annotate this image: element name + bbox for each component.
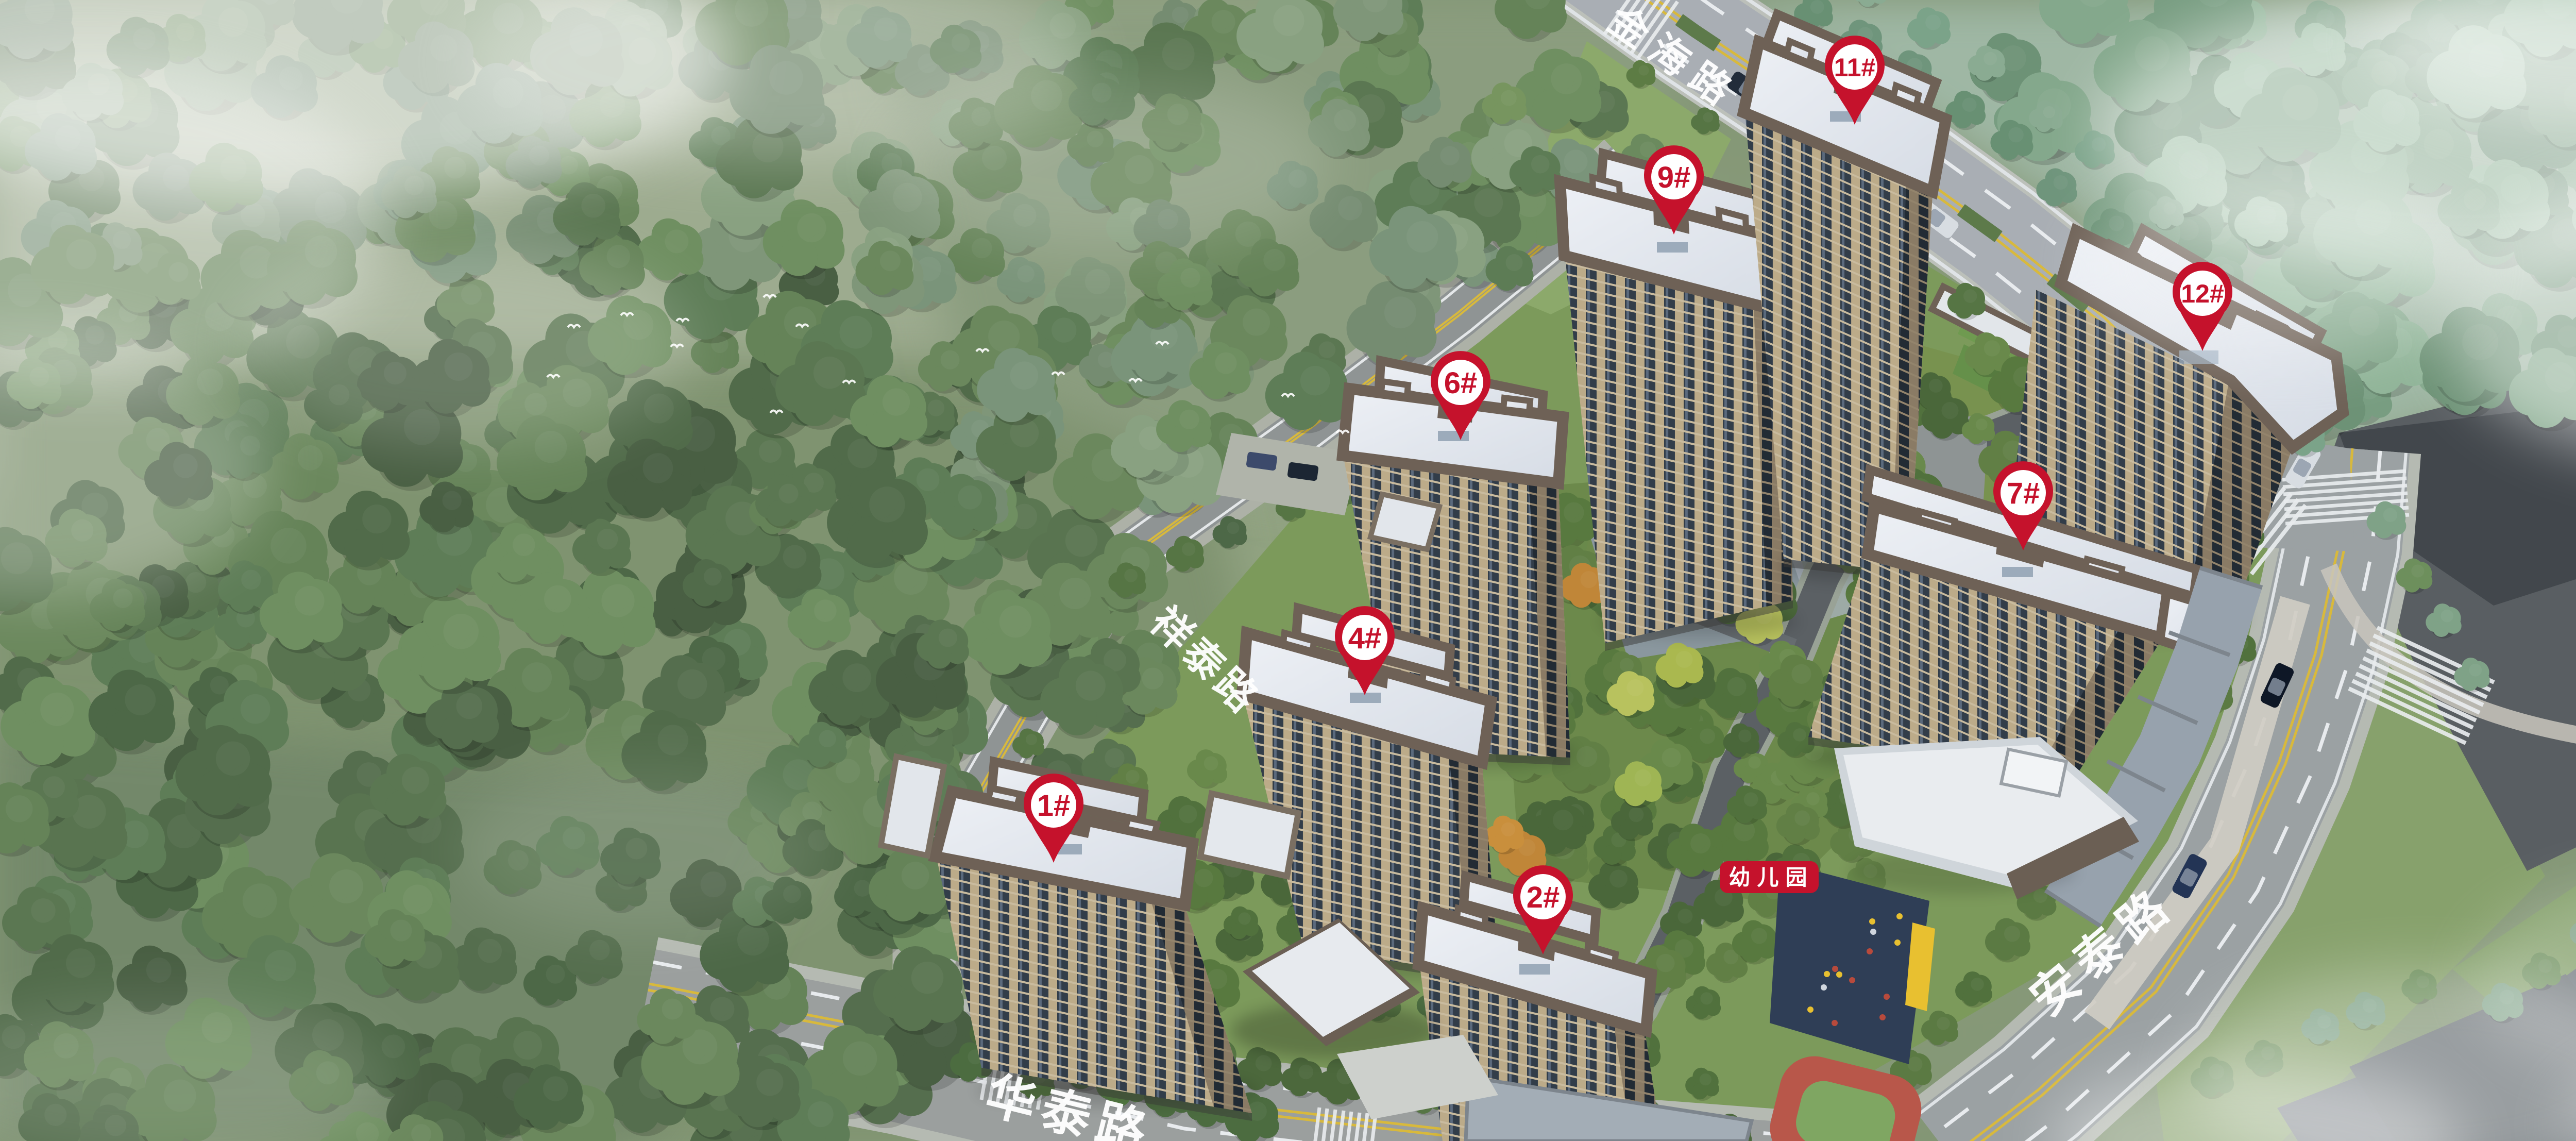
svg-text:11#: 11# (1834, 53, 1876, 82)
svg-text:7#: 7# (2007, 477, 2040, 510)
svg-text:1#: 1# (1037, 789, 1071, 823)
svg-text:6#: 6# (1444, 366, 1478, 400)
svg-text:幼儿园: 幼儿园 (1728, 865, 1814, 890)
svg-text:12#: 12# (2181, 279, 2224, 308)
svg-text:4#: 4# (1348, 622, 1382, 655)
svg-text:2#: 2# (1527, 881, 1560, 914)
svg-text:9#: 9# (1657, 161, 1691, 194)
